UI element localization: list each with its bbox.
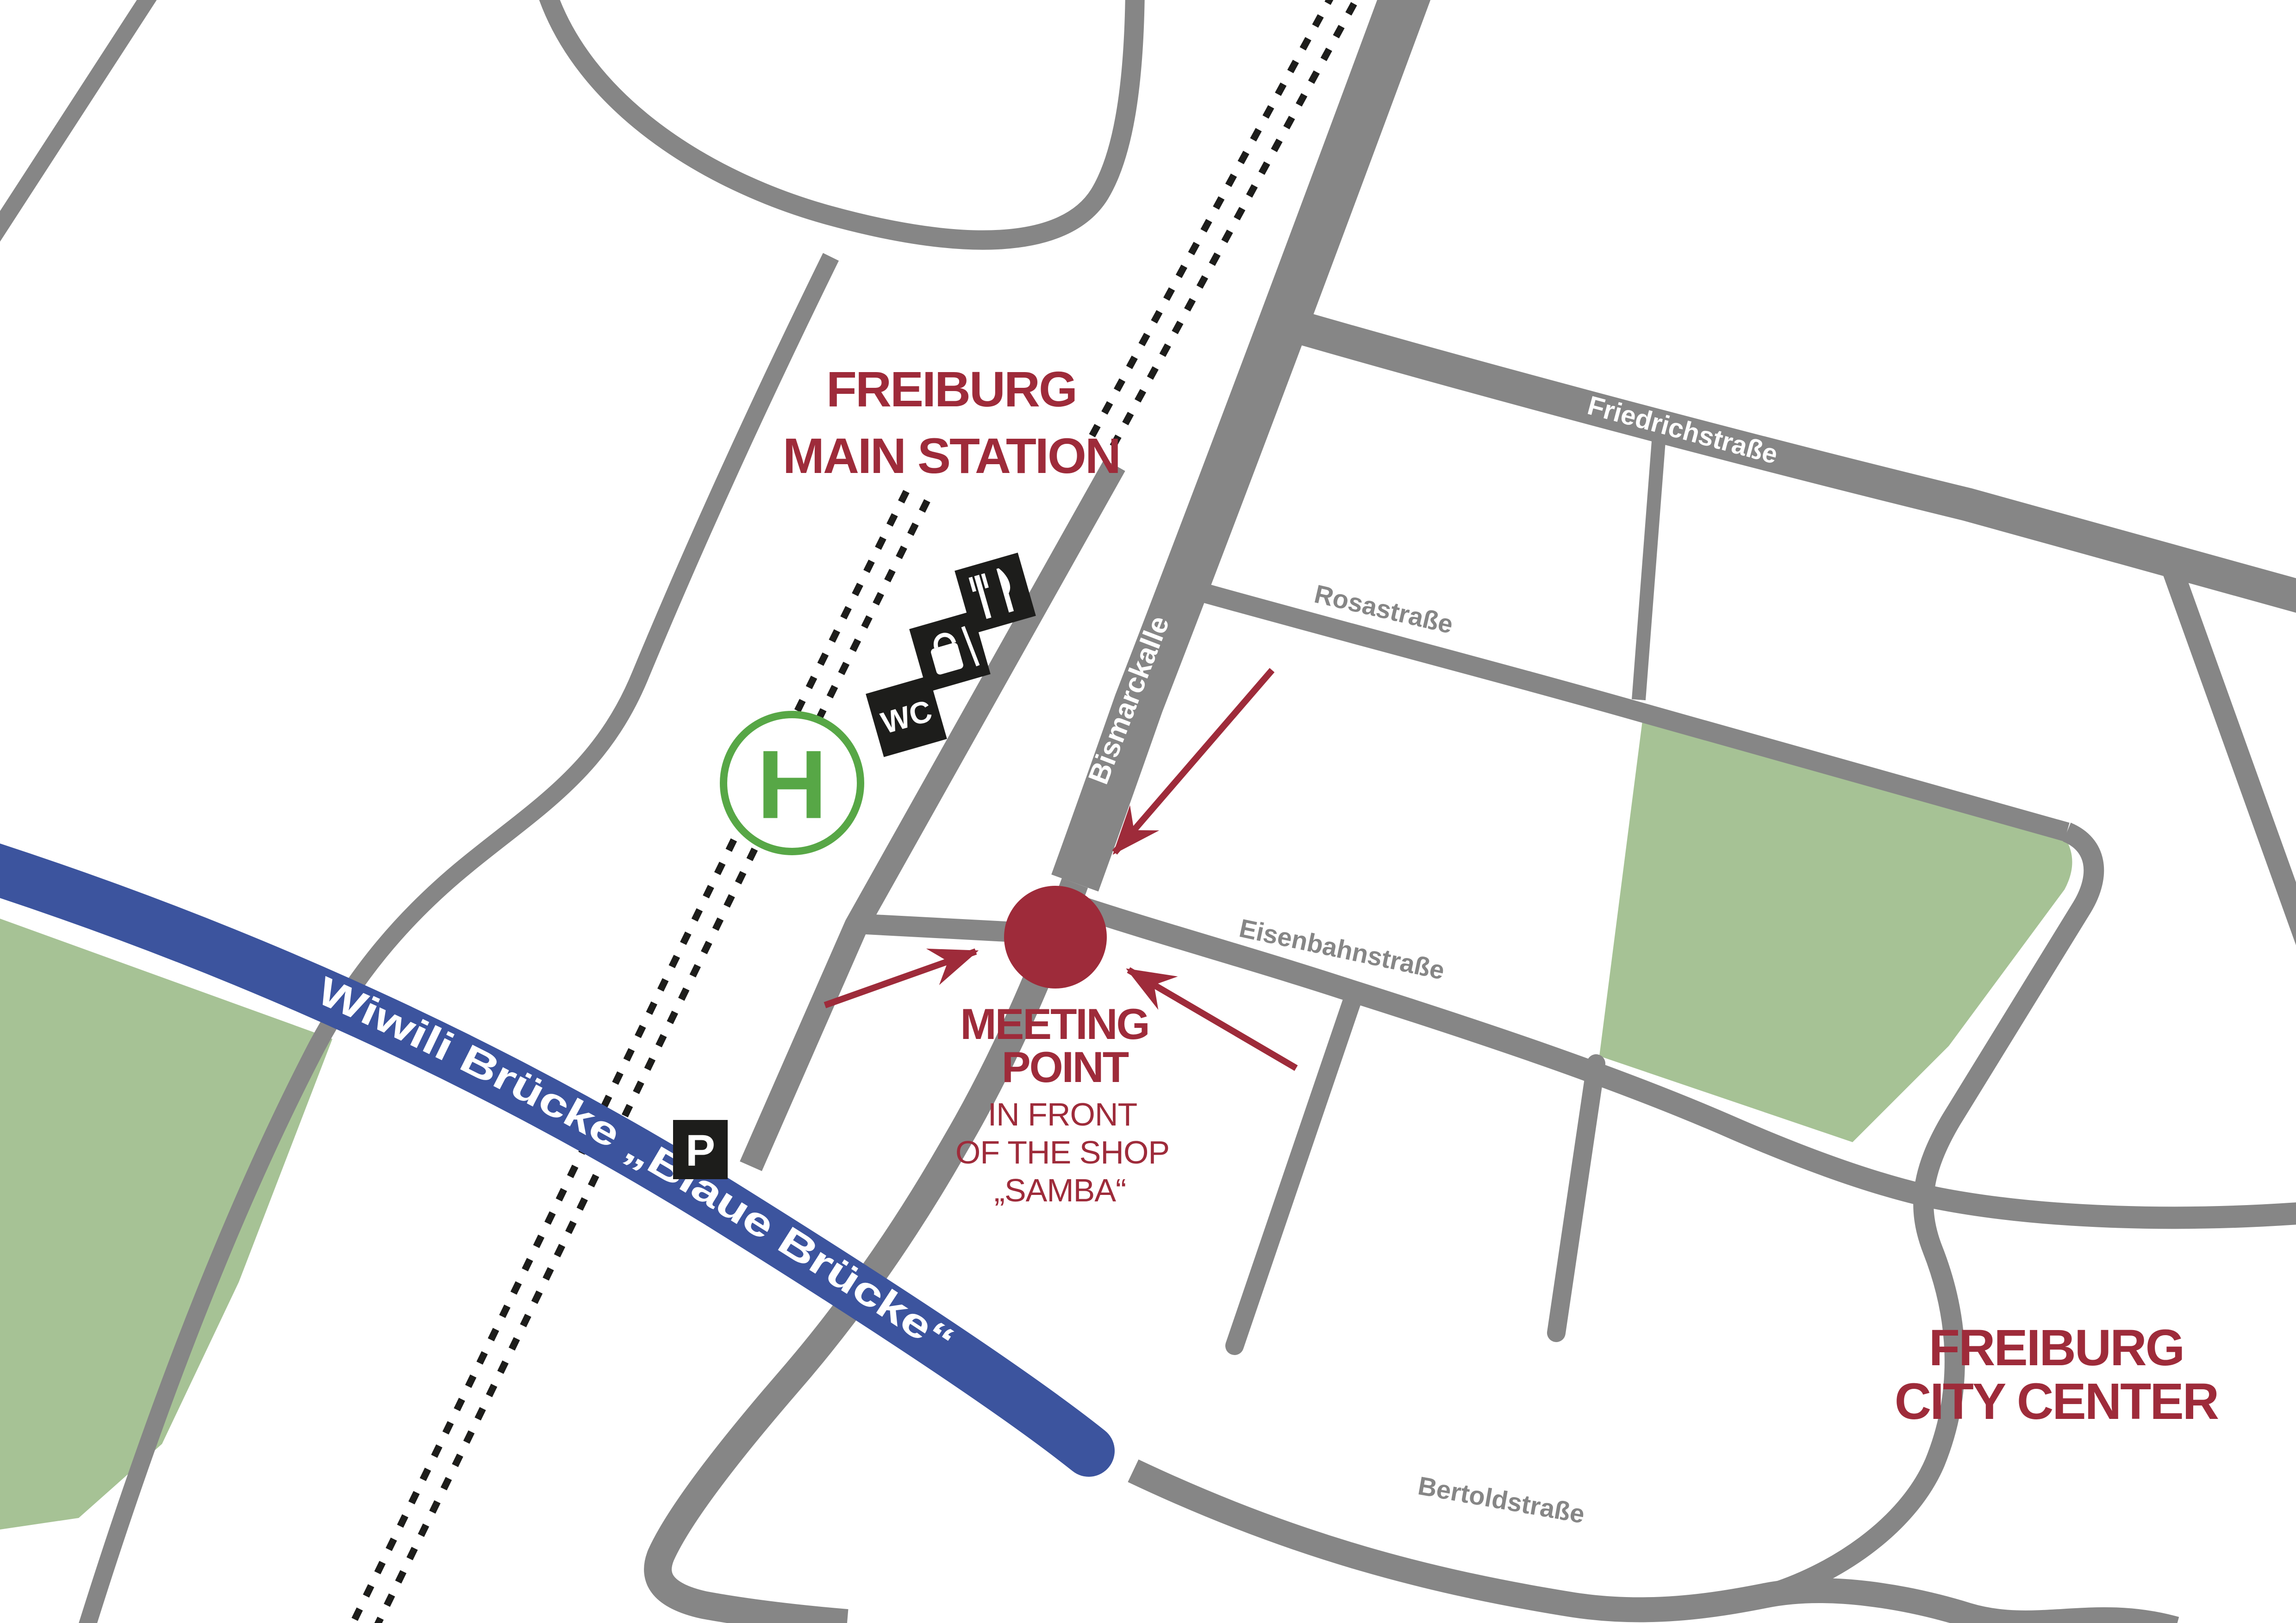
parking-icon-letter: P	[686, 1126, 715, 1175]
meeting-point-sub2: OF THE SHOP	[955, 1134, 1169, 1170]
meeting-point-marker	[1004, 886, 1107, 989]
freiburg-meeting-point-map: Wiwili Brücke „Blaue Brücke“ WC H P FREI…	[0, 0, 2296, 1623]
parking-icon: P	[673, 1120, 728, 1179]
city-center-label-line2: CITY CENTER	[1895, 1373, 2219, 1430]
tram-stop-letter: H	[757, 730, 827, 839]
station-title-line1: FREIBURG	[826, 361, 1076, 417]
meeting-point-sub1: IN FRONT	[988, 1096, 1137, 1132]
tram-stop-icon: H	[724, 715, 861, 852]
station-title-line2: MAIN STATION	[783, 428, 1120, 484]
city-center-label-line1: FREIBURG	[1929, 1319, 2184, 1376]
meeting-point-label-line1: MEETING	[960, 1000, 1148, 1048]
meeting-point-label-line2: POINT	[1002, 1043, 1129, 1091]
meeting-point-sub3: „SAMBA“	[994, 1172, 1126, 1208]
